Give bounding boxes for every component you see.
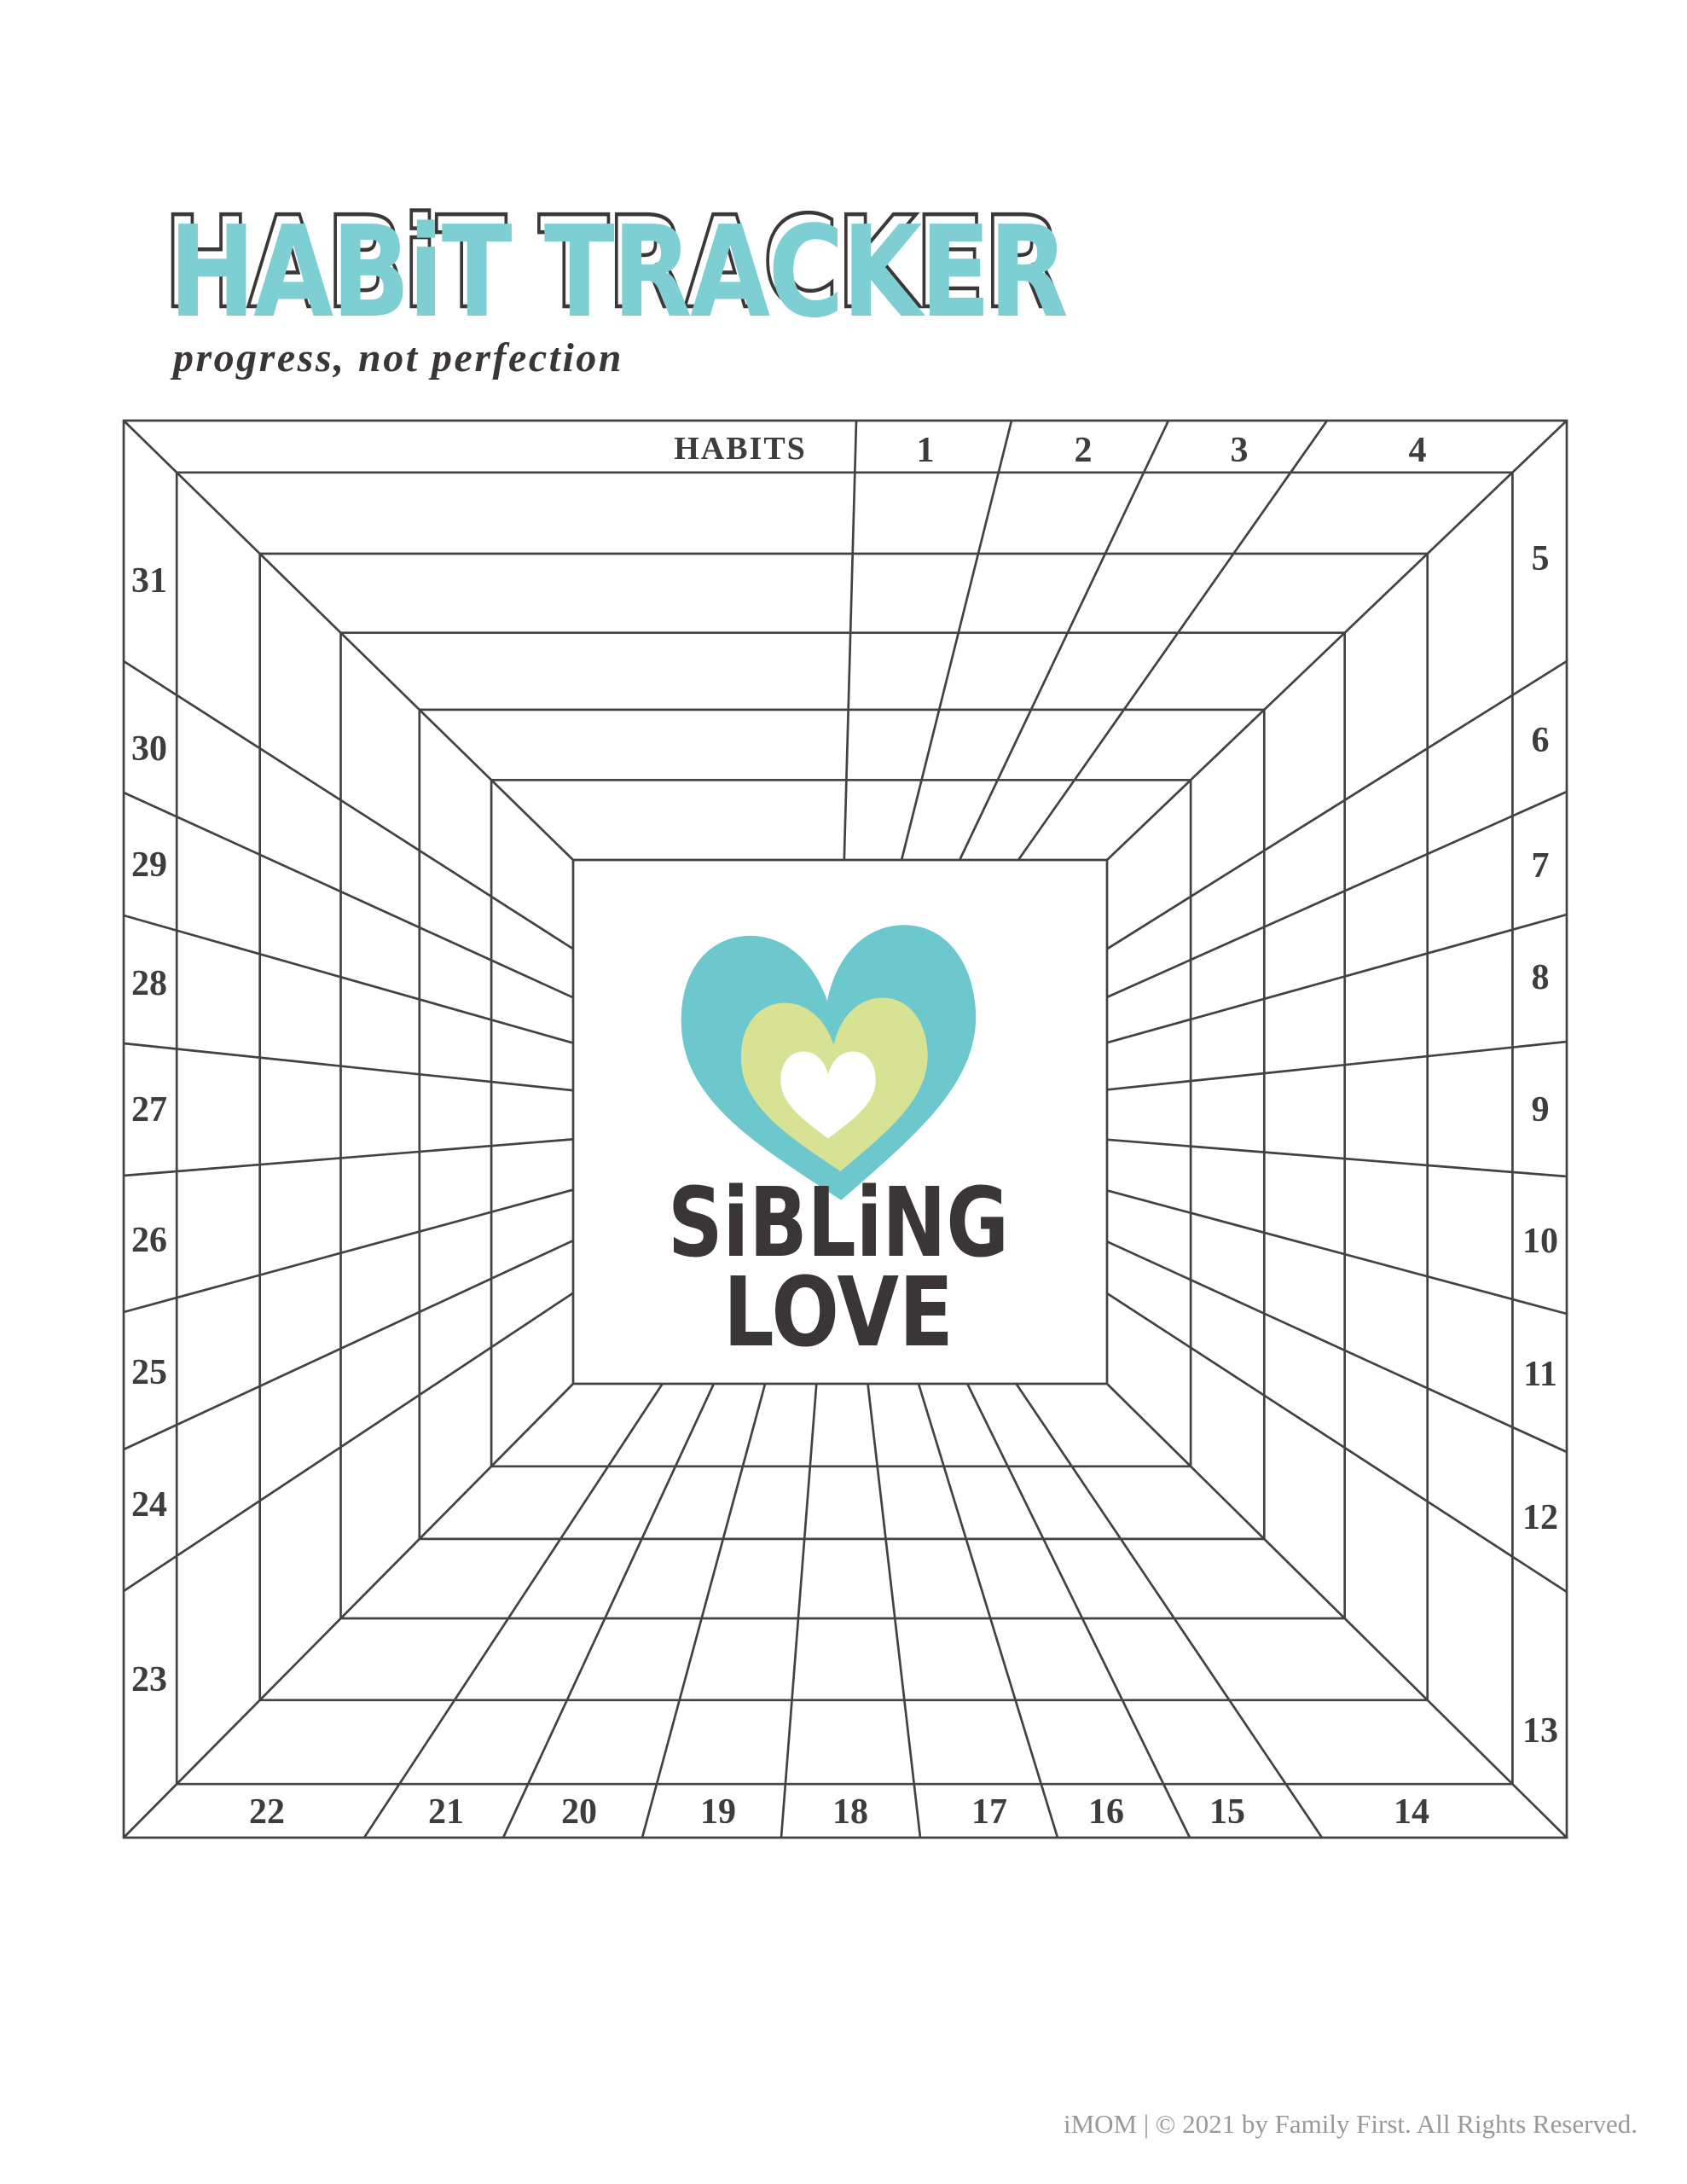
day-number-21: 21 xyxy=(428,1792,464,1832)
center-logo: SiBLiNG LOVE xyxy=(668,921,1009,1368)
day-number-16: 16 xyxy=(1088,1792,1124,1832)
day-number-11: 11 xyxy=(1523,1355,1557,1394)
day-number-18: 18 xyxy=(832,1792,868,1832)
day-number-25: 25 xyxy=(131,1353,167,1392)
day-number-7: 7 xyxy=(1532,846,1550,886)
day-number-3: 3 xyxy=(1231,431,1249,470)
day-number-23: 23 xyxy=(131,1660,167,1699)
day-number-30: 30 xyxy=(131,729,167,769)
day-number-28: 28 xyxy=(131,964,167,1003)
day-number-31: 31 xyxy=(131,561,167,601)
day-number-4: 4 xyxy=(1409,431,1427,470)
logo-text-love: LOVE xyxy=(723,1258,954,1368)
footer-credit: iMOM | © 2021 by Family First. All Right… xyxy=(1064,2109,1638,2140)
day-number-10: 10 xyxy=(1522,1222,1558,1261)
day-number-2: 2 xyxy=(1075,431,1093,470)
tracker-board: HABITS1234567891011121322212019181716151… xyxy=(0,0,1687,2184)
day-number-29: 29 xyxy=(131,845,167,885)
day-number-26: 26 xyxy=(131,1221,167,1260)
day-number-22: 22 xyxy=(249,1792,285,1832)
day-number-13: 13 xyxy=(1522,1711,1558,1751)
day-number-9: 9 xyxy=(1532,1090,1550,1130)
day-number-8: 8 xyxy=(1532,958,1550,997)
day-number-20: 20 xyxy=(561,1792,597,1832)
day-number-24: 24 xyxy=(131,1485,167,1525)
day-number-19: 19 xyxy=(700,1792,736,1832)
day-number-27: 27 xyxy=(131,1090,167,1130)
habits-header: HABITS xyxy=(674,431,807,467)
day-number-5: 5 xyxy=(1532,539,1550,578)
day-number-15: 15 xyxy=(1209,1792,1245,1832)
day-number-1: 1 xyxy=(917,431,935,470)
day-number-14: 14 xyxy=(1394,1792,1429,1832)
habit-tracker-sheet: HABiT TRACKER HABiT TRACKER progress, no… xyxy=(0,0,1687,2184)
day-number-12: 12 xyxy=(1522,1498,1558,1537)
day-number-6: 6 xyxy=(1532,721,1550,760)
day-number-17: 17 xyxy=(971,1792,1007,1832)
